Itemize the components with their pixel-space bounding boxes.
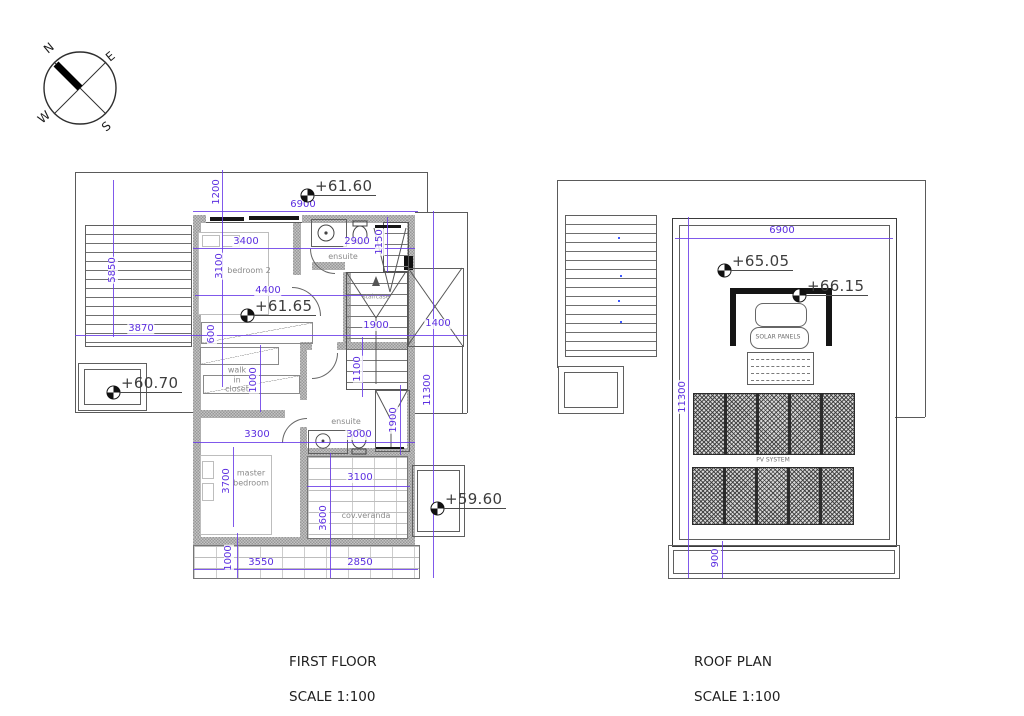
dimension-line xyxy=(237,533,238,578)
reflector-line xyxy=(751,373,810,374)
compass-label-north: N xyxy=(41,40,57,56)
window-sill xyxy=(249,216,299,220)
dimension-text: 3300 xyxy=(243,430,270,440)
boundary-line xyxy=(557,180,925,181)
boundary-line xyxy=(462,345,463,413)
boundary-line xyxy=(75,412,193,413)
dimension-line xyxy=(193,442,415,443)
dimension-text: 3100 xyxy=(215,252,225,279)
room-label-veranda: cov.veranda xyxy=(342,511,391,521)
level-marker: +61.65 xyxy=(240,298,316,323)
boundary-line xyxy=(467,212,468,413)
pillow xyxy=(202,235,220,247)
dimension-text: 3870 xyxy=(127,324,154,334)
dimension-text: 3000 xyxy=(345,430,372,440)
level-value: +66.15 xyxy=(805,278,868,296)
dimension-text: 1900 xyxy=(389,406,399,433)
dimension-text: 1200 xyxy=(212,178,222,205)
boundary-line xyxy=(415,413,467,414)
roof-plan: SOLAR PANELS PV SYSTEM 6900 11300 900 xyxy=(545,165,965,595)
dimension-text: 1100 xyxy=(353,355,363,382)
dimension-line xyxy=(195,295,390,296)
room-label-closet: walk in closet xyxy=(225,366,249,395)
reflector-line xyxy=(751,366,810,367)
dimension-text: 3700 xyxy=(222,467,232,494)
room-label-bedroom2: bedroom 2 xyxy=(227,266,270,276)
door-swing xyxy=(282,418,307,443)
dimension-text: 1150 xyxy=(375,228,385,255)
roof-plan-caption: ROOF PLAN SCALE 1:100 xyxy=(694,636,780,716)
reference-dot xyxy=(620,275,622,277)
reflector-line xyxy=(751,380,810,381)
level-marker: +60.70 xyxy=(106,375,182,400)
wardrobe xyxy=(201,322,313,344)
window-sill xyxy=(210,217,244,221)
dimension-text: 11300 xyxy=(423,373,433,407)
pv-separator xyxy=(723,468,726,524)
dimension-text: 1400 xyxy=(424,319,451,329)
pv-separator xyxy=(755,468,758,524)
dimension-text: 3600 xyxy=(319,504,329,531)
sink-icon xyxy=(316,223,336,243)
dimension-text: 1000 xyxy=(224,544,234,571)
reference-dot xyxy=(618,237,620,239)
dimension-line xyxy=(722,541,723,578)
pillow xyxy=(202,461,214,479)
dimension-text: 6900 xyxy=(768,226,795,236)
dimension-line xyxy=(400,385,401,455)
dimension-line xyxy=(675,238,893,239)
wardrobe xyxy=(200,347,279,365)
first-floor-title: FIRST FLOOR xyxy=(289,654,377,672)
level-value: +60.70 xyxy=(119,375,182,393)
dimension-text: 3550 xyxy=(247,558,274,568)
boundary-line xyxy=(895,417,925,418)
pv-system-label: PV SYSTEM xyxy=(756,456,790,463)
dimension-text: 1000 xyxy=(249,366,259,393)
reflector-line xyxy=(751,359,810,360)
level-marker: +66.15 xyxy=(792,278,868,303)
interior-wall xyxy=(293,223,301,275)
pv-separator xyxy=(820,394,823,454)
roof-plan-scale: SCALE 1:100 xyxy=(694,689,780,707)
pv-separator xyxy=(788,394,791,454)
dimension-text: 900 xyxy=(711,547,721,568)
dimension-text: 1900 xyxy=(362,321,389,331)
canopy-box-inner xyxy=(564,372,618,408)
dimension-text: 5850 xyxy=(108,256,118,283)
dimension-line xyxy=(330,453,331,578)
boundary-line xyxy=(557,180,558,368)
dimension-line xyxy=(193,211,418,212)
boundary-line xyxy=(427,172,428,212)
compass-north-needle-icon xyxy=(56,64,80,88)
reference-dot xyxy=(620,321,622,323)
pv-array-row2 xyxy=(692,467,854,525)
interior-wall xyxy=(300,427,307,537)
level-value: +61.65 xyxy=(253,298,316,316)
dimension-line xyxy=(433,211,434,578)
interior-wall xyxy=(193,410,285,418)
window-line xyxy=(206,222,302,223)
compass-rose: N E W S xyxy=(36,40,128,136)
dimension-line xyxy=(688,217,689,578)
dimension-line xyxy=(260,345,261,412)
roof-plan-title: ROOF PLAN xyxy=(694,654,780,672)
compass-label-south: S xyxy=(99,119,114,135)
pv-separator xyxy=(756,394,759,454)
room-label-master: master bedroom xyxy=(233,468,269,487)
pv-separator xyxy=(819,468,822,524)
pillow xyxy=(202,483,214,501)
pergola-louvers xyxy=(565,215,657,357)
level-value: +65.05 xyxy=(730,253,793,271)
interior-wall xyxy=(300,350,307,400)
level-marker: +59.60 xyxy=(430,491,506,516)
pv-separator xyxy=(787,468,790,524)
room-label-ensuite-top: ensuite xyxy=(328,252,358,262)
solar-collector xyxy=(755,303,807,327)
pv-array-row1 xyxy=(693,393,855,455)
dimension-text: 2850 xyxy=(346,558,373,568)
room-label-ensuite-bottom: ensuite xyxy=(331,417,361,427)
dimension-text: 2900 xyxy=(343,237,370,247)
level-value: +61.60 xyxy=(313,178,376,196)
compass-label-west: W xyxy=(35,108,53,126)
first-floor-plan: 1200 6900 3400 2900 1150 3100 5850 4400 … xyxy=(60,165,510,595)
architectural-drawing-sheet: N E W S xyxy=(0,0,1024,716)
level-value: +59.60 xyxy=(443,491,506,509)
dimension-text: 3100 xyxy=(346,473,373,483)
sink-icon xyxy=(314,432,332,450)
pv-separator xyxy=(724,394,727,454)
first-floor-scale: SCALE 1:100 xyxy=(289,689,377,707)
dimension-line xyxy=(307,486,410,487)
level-marker: +65.05 xyxy=(717,253,793,278)
stair-break-lines xyxy=(366,222,410,300)
boundary-line xyxy=(925,180,926,417)
dimension-text: 600 xyxy=(207,323,217,344)
level-marker: +61.60 xyxy=(300,178,376,203)
boundary-line xyxy=(415,212,467,213)
door-swing xyxy=(312,353,338,379)
boundary-line xyxy=(75,172,76,412)
reference-dot xyxy=(618,300,620,302)
room-label-staircase: staircase xyxy=(363,293,390,300)
solar-frame-left xyxy=(730,288,736,346)
first-floor-caption: FIRST FLOOR SCALE 1:100 xyxy=(289,636,377,716)
dimension-line xyxy=(387,217,388,272)
eave-band-inner xyxy=(673,550,895,574)
solar-reflector xyxy=(747,352,814,385)
dimension-line xyxy=(75,335,467,336)
dimension-text: 4400 xyxy=(254,286,281,296)
void-x-lines xyxy=(408,268,462,345)
dimension-text: 3400 xyxy=(232,237,259,247)
dimension-text: 11300 xyxy=(678,380,688,414)
boundary-line xyxy=(75,172,427,173)
solar-panels-label: SOLAR PANELS xyxy=(756,333,801,340)
